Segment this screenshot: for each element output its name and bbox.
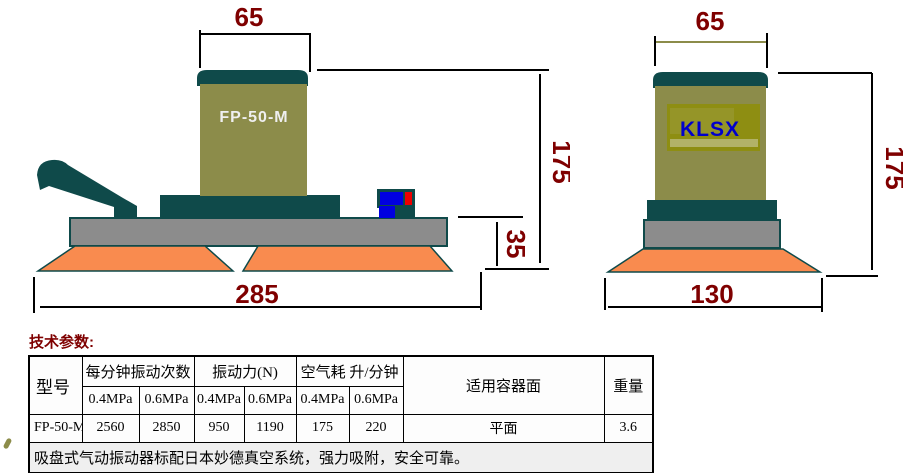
subheader-force-06: 0.6MPa [244,386,296,414]
dim-height-value: 175 [547,140,570,183]
device-body [200,84,307,196]
dim-top-width: 65 [655,6,767,68]
subheader-vib-04: 0.4MPa [82,386,139,414]
cell-vib-04: 2560 [82,414,139,442]
base-plate [644,220,780,248]
subheader-vib-06: 0.6MPa [139,386,194,414]
cell-vib-06: 2850 [139,414,194,442]
side-view-diagram: FP-50-M 65 175 [0,0,570,325]
cell-force-06: 1190 [244,414,296,442]
mount-block [647,200,777,220]
dim-top-width-value: 65 [696,6,725,36]
valve-housing-bottom [394,206,415,219]
cell-surface: 平面 [403,414,604,442]
subheader-air-04: 0.4MPa [296,386,349,414]
dim-top-width: 65 [200,2,310,72]
dim-base-width-value: 285 [235,279,278,309]
col-header-vibrations: 每分钟振动次数 [82,356,194,386]
device-label: KLSX [680,118,740,141]
base-plate [70,218,447,246]
page: FP-50-M 65 175 [0,0,903,473]
section-heading: 技术参数: [29,331,94,352]
subheader-air-06: 0.6MPa [349,386,403,414]
air-valve [377,189,415,219]
col-header-weight: 重量 [604,356,653,414]
mount-block [160,195,340,218]
cell-weight: 3.6 [604,414,653,442]
col-header-model: 型号 [29,356,82,414]
cell-force-04: 950 [194,414,244,442]
front-view-diagram: KLSX 65 175 130 [570,0,903,325]
device-label: FP-50-M [219,109,288,126]
device-cap [653,72,768,88]
table-row: FP-50-M 2560 2850 950 1190 175 220 平面 3.… [29,414,653,442]
device-cap [197,70,308,86]
col-header-force: 振动力(N) [194,356,296,386]
subheader-force-04: 0.4MPa [194,386,244,414]
valve-blue-bottom [379,206,395,218]
dim-height: 175 [778,73,903,276]
cell-air-04: 175 [296,414,349,442]
col-header-air: 空气耗 升/分钟 [296,356,403,386]
dim-top-width-value: 65 [235,2,264,32]
dim-base-width-value: 130 [690,279,733,309]
dim-base-width: 285 [34,272,481,313]
stray-mark [3,437,13,449]
valve-blue-top [380,192,403,205]
dim-cup-height: 35 [458,217,531,266]
valve-red-tip [405,192,412,205]
col-header-surface: 适用容器面 [403,356,604,414]
suction-cup-left [38,246,233,271]
suction-cup-right [243,246,452,271]
cell-model: FP-50-M [29,414,82,442]
table-note: 吸盘式气动振动器标配日本妙德真空系统，强力吸附，安全可靠。 [29,442,653,473]
dim-base-width: 130 [605,278,822,312]
cell-air-06: 220 [349,414,403,442]
specs-table: 型号 每分钟振动次数 振动力(N) 空气耗 升/分钟 适用容器面 重量 0.4M… [28,355,654,473]
handle-arm [37,160,137,218]
suction-cup [608,249,820,272]
dim-cup-height-value: 35 [501,230,531,259]
dim-height-value: 175 [880,146,903,189]
